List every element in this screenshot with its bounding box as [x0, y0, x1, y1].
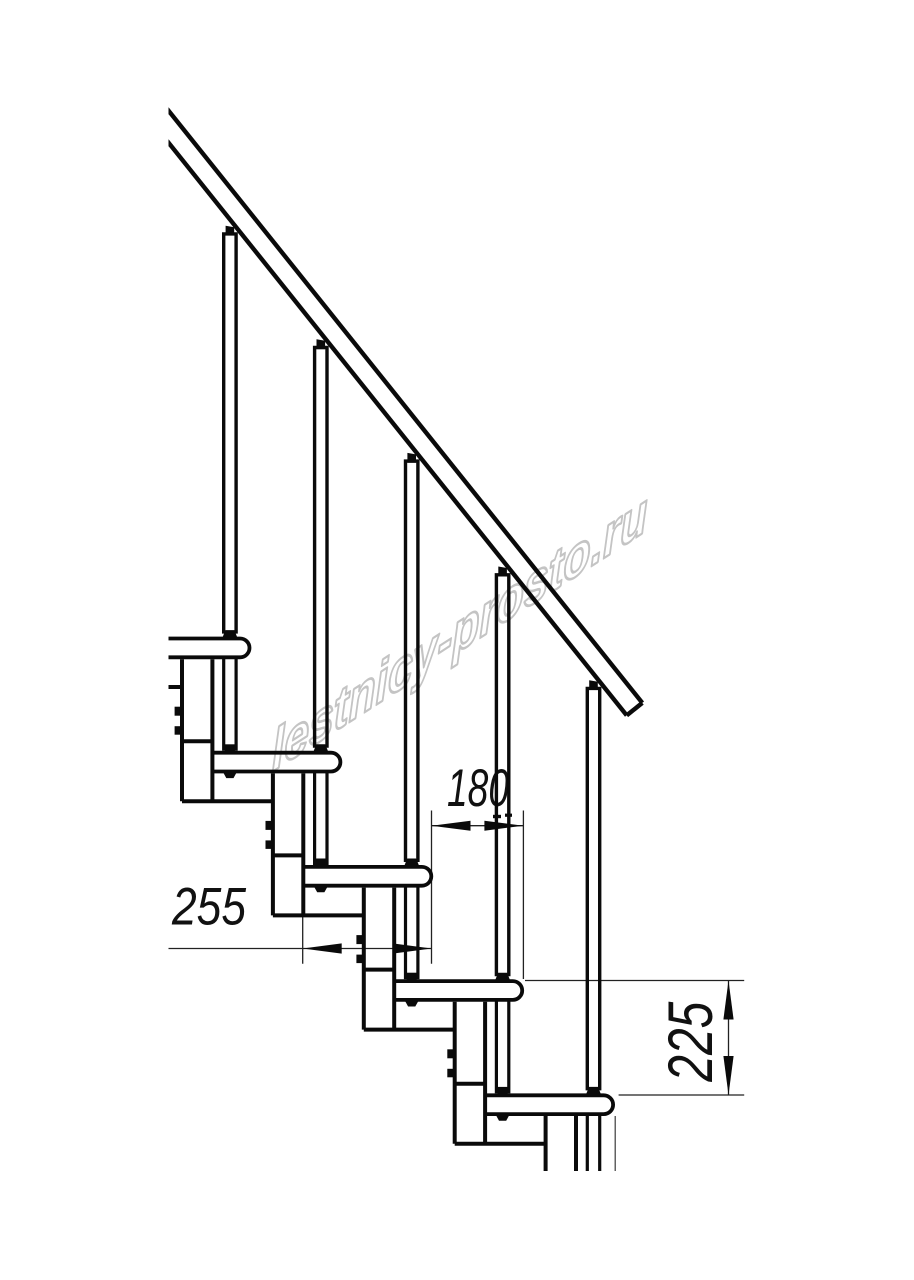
svg-text:255: 255 [171, 878, 246, 937]
svg-text:180: 180 [447, 759, 509, 818]
svg-text:225: 225 [656, 1001, 726, 1082]
